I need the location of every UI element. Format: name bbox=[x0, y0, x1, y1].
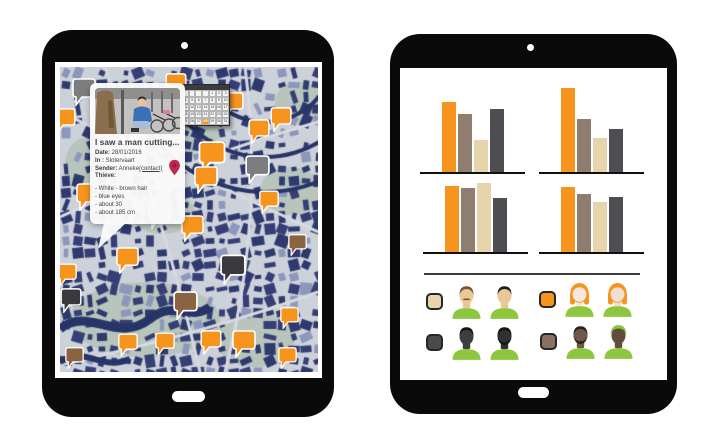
legend-group-dark bbox=[426, 324, 521, 361]
legend-group-cream bbox=[426, 283, 521, 320]
report-field: Date: 28/01/2016 bbox=[95, 150, 180, 158]
report-photo bbox=[95, 88, 180, 134]
description-line: - blue eyes bbox=[95, 194, 180, 202]
legend-avatars bbox=[450, 283, 521, 320]
map-pin-orange[interactable] bbox=[155, 332, 175, 356]
bar-taupe bbox=[461, 188, 475, 252]
section-divider bbox=[424, 273, 640, 275]
bar-taupe bbox=[577, 194, 591, 252]
avatar-male-icon bbox=[488, 283, 521, 320]
bar-orange bbox=[442, 102, 456, 172]
calendar-widget[interactable]: 1234567891011121314151617181920212223242… bbox=[181, 84, 230, 126]
legend-swatch bbox=[540, 333, 557, 350]
legend-avatars bbox=[564, 323, 635, 360]
legend-avatars bbox=[563, 281, 634, 318]
popup-tail bbox=[96, 223, 130, 249]
map-pin-orange[interactable] bbox=[116, 247, 139, 274]
description-line: - about 30 bbox=[95, 202, 180, 210]
camera-dot bbox=[527, 44, 534, 51]
bar-orange bbox=[561, 88, 575, 172]
right-tablet-screen bbox=[400, 68, 667, 380]
bar-chart-top-left bbox=[420, 84, 525, 174]
bar-cream bbox=[477, 183, 491, 252]
map-pin-orange[interactable] bbox=[278, 347, 297, 369]
map-pin-orange[interactable] bbox=[60, 263, 77, 287]
two-tablet-mockup: 1234567891011121314151617181920212223242… bbox=[0, 0, 721, 446]
map-pin-orange[interactable] bbox=[280, 307, 299, 329]
map-pin-orange[interactable] bbox=[248, 119, 270, 144]
bar-chart-bottom-left bbox=[423, 179, 528, 254]
home-button[interactable] bbox=[172, 391, 205, 402]
bar-chart-top-right bbox=[539, 84, 644, 174]
legend-swatch bbox=[426, 334, 443, 351]
map-pin-brown[interactable] bbox=[288, 234, 307, 256]
legend-group-orange bbox=[539, 281, 634, 318]
bar-dark-gray bbox=[490, 109, 504, 172]
right-tablet-frame bbox=[390, 34, 677, 414]
city-map[interactable]: 1234567891011121314151617181920212223242… bbox=[60, 67, 318, 372]
bar-orange bbox=[445, 186, 459, 252]
map-pin-dark[interactable] bbox=[220, 254, 246, 285]
description-line: - White - brown hair bbox=[95, 186, 180, 194]
map-pin-orange[interactable] bbox=[194, 166, 218, 194]
left-tablet-frame: 1234567891011121314151617181920212223242… bbox=[42, 30, 334, 417]
avatar-male-icon bbox=[450, 283, 483, 320]
report-description: - White - brown hair- blue eyes- about 3… bbox=[95, 186, 180, 217]
avatar-hood-icon bbox=[602, 323, 635, 360]
map-pin-orange[interactable] bbox=[259, 190, 279, 214]
avatar-male-icon bbox=[564, 323, 597, 360]
contact-link[interactable]: (contact) bbox=[139, 166, 162, 172]
legend-swatch bbox=[426, 293, 443, 310]
location-marker-icon[interactable] bbox=[168, 159, 181, 176]
left-tablet-screen: 1234567891011121314151617181920212223242… bbox=[55, 62, 322, 378]
legend-swatch bbox=[539, 291, 556, 308]
report-title: I saw a man cutting... bbox=[95, 138, 180, 147]
avatar-female-icon bbox=[601, 281, 634, 318]
map-pin-gray[interactable] bbox=[245, 155, 270, 184]
bar-cream bbox=[593, 202, 607, 252]
map-pin-dark[interactable] bbox=[60, 288, 82, 313]
bar-orange bbox=[561, 187, 575, 252]
home-button[interactable] bbox=[518, 387, 549, 398]
bar-cream bbox=[593, 138, 607, 172]
avatar-male-icon bbox=[450, 324, 483, 361]
avatar-female-icon bbox=[563, 281, 596, 318]
calendar-highlight-day[interactable]: 28 bbox=[202, 118, 209, 125]
bar-dark-gray bbox=[493, 198, 507, 252]
map-pin-orange[interactable] bbox=[200, 330, 222, 355]
description-line: - about 185 cm bbox=[95, 210, 180, 218]
map-pin-orange[interactable] bbox=[118, 333, 138, 357]
legend-group-brown bbox=[540, 323, 635, 360]
bar-dark-gray bbox=[609, 129, 623, 172]
bar-taupe bbox=[458, 114, 472, 172]
camera-dot bbox=[181, 42, 188, 49]
legend-avatars bbox=[450, 324, 521, 361]
bar-dark-gray bbox=[609, 197, 623, 252]
calendar-grid: 1234567891011121314151617181920212223242… bbox=[182, 90, 229, 125]
map-pin-orange[interactable] bbox=[232, 330, 256, 358]
avatar-male-icon bbox=[488, 324, 521, 361]
report-popup: I saw a man cutting... Date: 28/01/2016I… bbox=[90, 83, 185, 224]
bar-taupe bbox=[577, 119, 591, 172]
map-pin-brown[interactable] bbox=[65, 347, 84, 369]
map-pin-brown[interactable] bbox=[173, 291, 198, 320]
bar-chart-bottom-right bbox=[539, 179, 644, 254]
map-pin-orange[interactable] bbox=[270, 107, 292, 132]
bar-cream bbox=[474, 140, 488, 172]
map-pin-orange[interactable] bbox=[60, 108, 76, 133]
